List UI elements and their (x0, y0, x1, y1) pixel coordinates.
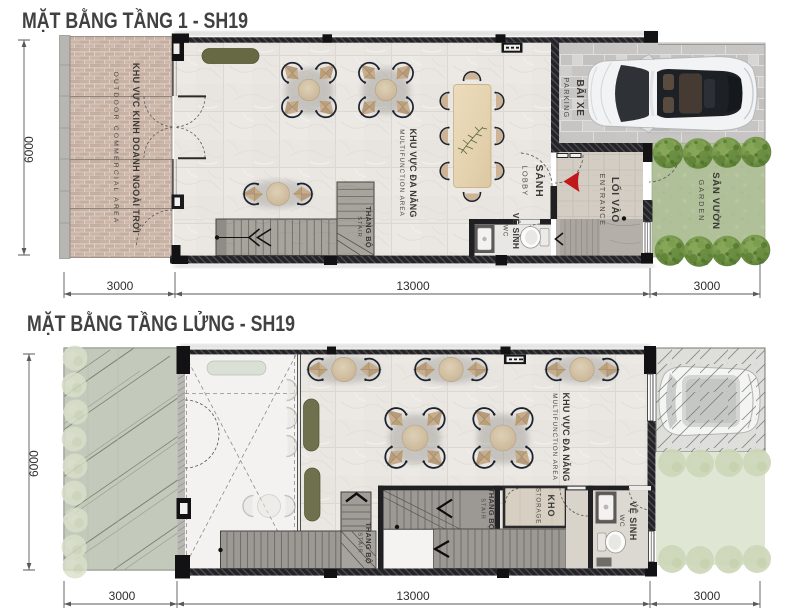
svg-text:STAIR: STAIR (356, 216, 362, 238)
svg-text:SẢNH: SẢNH (533, 165, 546, 198)
svg-text:SÂN VƯỜN: SÂN VƯỜN (710, 172, 722, 229)
svg-text:13000: 13000 (396, 279, 430, 293)
svg-text:THANG BỘ: THANG BỘ (364, 206, 373, 248)
svg-text:VỆ SINH: VỆ SINH (511, 213, 522, 249)
svg-text:WC: WC (618, 515, 625, 528)
svg-text:WC: WC (502, 225, 509, 237)
svg-text:MULTIFUNCTION AREA: MULTIFUNCTION AREA (398, 129, 405, 217)
svg-text:MẶT BẰNG TẦNG 1 - SH19: MẶT BẰNG TẦNG 1 - SH19 (22, 8, 248, 33)
svg-text:13000: 13000 (396, 589, 430, 603)
svg-text:6000: 6000 (27, 450, 41, 477)
svg-text:THANG BỘ: THANG BỘ (487, 488, 496, 530)
svg-text:KHU VỰC ĐA NĂNG: KHU VỰC ĐA NĂNG (408, 128, 418, 217)
svg-text:3000: 3000 (694, 279, 721, 293)
svg-text:THANG BỘ: THANG BỘ (364, 522, 373, 564)
svg-text:STORAGE: STORAGE (535, 488, 542, 524)
svg-text:MẶT BẰNG TẦNG LỬNG - SH19: MẶT BẰNG TẦNG LỬNG - SH19 (27, 311, 295, 336)
svg-text:BÃI XE: BÃI XE (574, 80, 587, 117)
svg-text:6000: 6000 (22, 136, 36, 163)
svg-text:PARKING: PARKING (562, 78, 571, 119)
svg-text:GARDEN: GARDEN (697, 180, 706, 223)
svg-text:LỐI VÀO: LỐI VÀO (609, 177, 623, 223)
svg-text:KHO: KHO (546, 495, 556, 518)
svg-text:STAIR: STAIR (480, 498, 486, 520)
svg-text:LOBBY: LOBBY (521, 165, 530, 196)
svg-text:3000: 3000 (109, 589, 136, 603)
svg-text:3000: 3000 (694, 589, 721, 603)
svg-text:VỆ SINH: VỆ SINH (628, 501, 639, 541)
svg-text:STAIR: STAIR (357, 532, 363, 554)
svg-text:KHU VỰC KINH DOANH NGOÀI TRỜI: KHU VỰC KINH DOANH NGOÀI TRỜI (131, 63, 142, 233)
svg-text:KHU VỰC ĐA NĂNG: KHU VỰC ĐA NĂNG (561, 392, 571, 481)
svg-text:3000: 3000 (107, 279, 134, 293)
svg-text:OUTDOOR COMMERCIAL AREA: OUTDOOR COMMERCIAL AREA (112, 71, 119, 224)
svg-text:MULTIFUNCTION AREA: MULTIFUNCTION AREA (551, 393, 558, 481)
svg-text:ENTRANCE: ENTRANCE (598, 173, 607, 226)
